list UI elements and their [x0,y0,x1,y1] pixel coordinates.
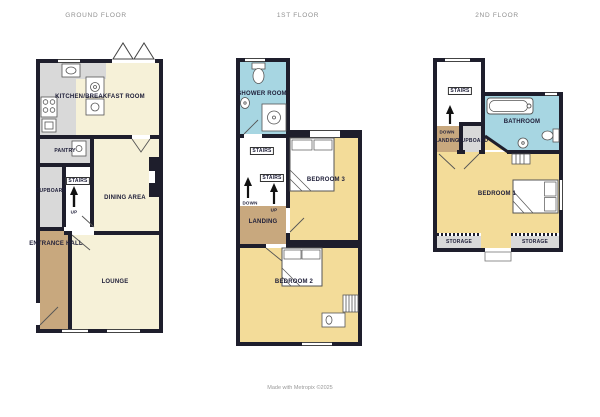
storage-label: STORAGE [446,239,472,245]
lounge-label: LOUNGE [102,279,129,285]
french-doors-icon [113,43,154,59]
window [302,342,332,346]
bedroom2-label: BEDROOM 2 [275,279,313,285]
watermark: Made with Metropix ©2025 [267,385,333,391]
room-cupboard [40,167,62,227]
storage-hatch [511,233,559,236]
second-stairs-foot [437,114,481,122]
bedroom1-label: BEDROOM 1 [478,191,516,197]
ground-floor-plan: KITCHEN/BREAKFAST ROOM PANTRY CUPBOARD S… [36,59,163,333]
window [245,58,265,62]
up-label: UP [271,208,278,213]
entrance-hall-label: ENTRANCE HALL [29,241,83,247]
stairs-label: STAIRS [448,87,472,95]
window [310,130,340,138]
kitchen-counter-top [40,63,106,79]
front-door-opening [36,303,40,325]
window [58,59,80,63]
stairs-label: STAIRS [66,177,90,185]
second-floor-title: 2ND FLOOR [475,12,519,19]
first-floor-plan: SHOWER ROOM STAIRS STAIRS DOWN UP LANDIN… [236,58,362,346]
second-floor-plan: STAIRS DOWN LANDING CUPBOARD BATHROOM BE… [433,58,563,256]
down-label: DOWN [439,130,454,135]
dining-label: DINING AREA [104,195,146,201]
window [107,329,140,333]
pantry-label: PANTRY [54,148,75,154]
ground-stairs-treads [66,167,90,205]
storage-hatch [437,233,481,236]
cupboard-label: CUPBOARD [458,138,489,144]
room-landing [240,206,286,244]
window [62,329,88,333]
kitchen-label: KITCHEN/BREAKFAST ROOM [55,94,145,100]
window [545,92,557,96]
door-step [485,252,511,261]
stairs-label: STAIRS [260,174,284,182]
landing-label: LANDING [435,138,459,144]
french-door-opening [112,59,155,63]
storage-label: STORAGE [522,239,548,245]
door-opening [485,248,511,252]
shower-room-label: SHOWER ROOM [237,91,287,97]
room-bedroom3 [290,138,358,240]
ground-stairs-lower [66,205,90,227]
bedroom3-label: BEDROOM 3 [307,177,345,183]
window [445,58,470,62]
ground-floor-title: GROUND FLOOR [65,12,127,19]
window [559,180,563,210]
stairs-label: STAIRS [250,147,274,155]
floorplan-stage: GROUND FLOOR 1ST FLOOR 2ND FLOOR [0,0,600,417]
down-label: DOWN [242,201,257,206]
landing-label: LANDING [249,219,278,225]
room-bedroom2 [240,248,358,342]
first-floor-title: 1ST FLOOR [277,12,319,19]
cupboard-label: CUPBOARD [36,188,67,194]
room-shower [240,62,286,134]
up-label: UP [71,210,78,215]
bathroom-label: BATHROOM [504,119,540,125]
